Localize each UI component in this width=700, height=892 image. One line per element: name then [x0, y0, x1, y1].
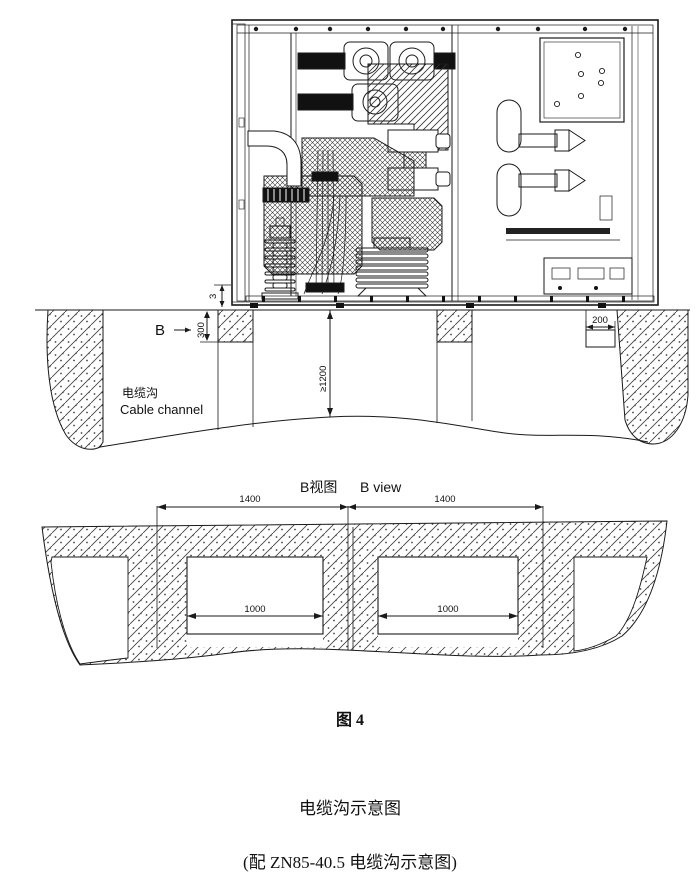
figure-title: 电缆沟示意图 [0, 794, 700, 819]
right-compartment [497, 26, 638, 300]
b-view-title-en: B view [360, 479, 402, 495]
channel-label-en: Cable channel [120, 402, 203, 417]
dim-label-1000-right: 1000 [437, 604, 458, 615]
b-view-left-channel [51, 557, 128, 664]
dim-label-3: 3 [208, 294, 219, 299]
bushing-arm-lower [519, 170, 585, 191]
dim-label-200: 200 [592, 315, 608, 326]
drawing-page: 300 3 ≥1200 200 B [0, 0, 700, 892]
dim-label-1400-right: 1400 [434, 494, 455, 505]
b-view-slab [42, 521, 667, 665]
b-view-marker: B [155, 322, 191, 339]
right-bank [617, 310, 688, 444]
dim-label-300: 300 [196, 322, 207, 338]
dim-label-1200: ≥1200 [318, 366, 329, 392]
cable-channel-drawing: 300 3 ≥1200 200 B [0, 0, 700, 892]
b-view: B视图 B view 1400 1400 1000 [42, 479, 667, 665]
switchgear-elevation [232, 20, 658, 308]
channel-label-cn: 电缆沟 [122, 386, 158, 400]
coil-block [263, 188, 309, 202]
base-rail [246, 296, 654, 308]
left-foundation-block [218, 310, 253, 342]
dim-floor-gap: 3 [208, 285, 231, 307]
bolted-panel [540, 38, 624, 122]
dim-label-1400-left: 1400 [239, 494, 260, 505]
left-bank [47, 310, 103, 449]
dim-label-1000-left: 1000 [244, 604, 265, 615]
dim-bay-pitch: 1400 1400 [157, 494, 543, 510]
dim-right-step: 200 [586, 315, 615, 331]
left-door-panel [232, 24, 249, 302]
ground-cross-section: 300 3 ≥1200 200 B [35, 285, 690, 449]
dim-trench-depth: ≥1200 [318, 310, 333, 417]
b-marker-letter: B [155, 322, 165, 339]
figure-subtitle: (配 ZN85-40.5 电缆沟示意图) [0, 848, 700, 873]
section-break-line [100, 416, 648, 447]
figure-label: 图 4 [0, 706, 700, 730]
middle-pier-block [437, 310, 472, 342]
b-view-title-cn: B视图 [300, 479, 337, 495]
frame-bolts [254, 27, 627, 31]
bushing-arm-upper [519, 130, 585, 151]
right-step-block [586, 330, 615, 347]
dim-foundation-depth: 300 [196, 311, 218, 342]
